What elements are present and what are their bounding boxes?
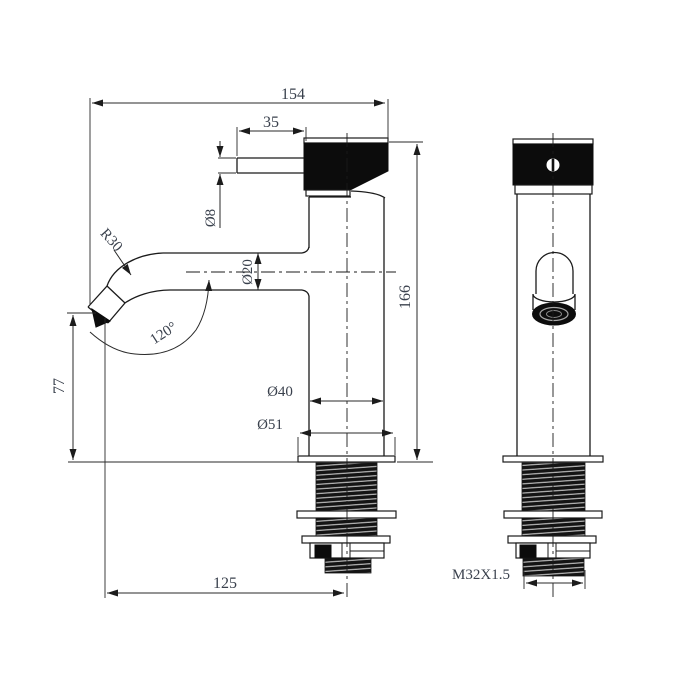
base-flange [298, 456, 395, 462]
body-shoulder-fillet [351, 191, 385, 198]
dim-m32-label: M32X1.5 [452, 567, 510, 583]
body-column [309, 197, 384, 456]
dim-spout-angle: 120° [90, 280, 209, 355]
dim-d51-extension-lines [298, 437, 395, 455]
dim-120-arc [90, 280, 209, 355]
spout-tip-band-line [107, 286, 125, 303]
dim-flange-diameter: Ø51 [257, 417, 395, 455]
dim-154-label: 154 [281, 86, 305, 103]
dim-d51-label: Ø51 [257, 417, 283, 433]
dim-35-label: 35 [263, 114, 279, 131]
spout-tube [163, 253, 302, 290]
front-locknut-flange [508, 536, 596, 543]
spout-bend-outer [88, 253, 163, 307]
mounting-washer [297, 511, 396, 518]
dim-tube-diameter: Ø20 [240, 253, 258, 290]
side-view-base-assembly [297, 456, 396, 573]
dim-d20-label: Ø20 [240, 259, 256, 285]
inlet-tailpiece [325, 558, 371, 573]
dim-d40-label: Ø40 [267, 384, 293, 400]
technical-drawing-page: 154 35 Ø8 R30 Ø20 120° [0, 0, 675, 675]
locknut-flange [302, 536, 390, 543]
front-view [503, 133, 603, 600]
handle-lever-rod [237, 158, 304, 173]
dim-154-extension-lines [90, 98, 388, 305]
handle-body [304, 143, 388, 190]
dim-d8-extension-lines [218, 158, 236, 173]
spout-body-fillets [302, 247, 309, 296]
handle-joint-band [306, 190, 350, 196]
bracket-clip [315, 545, 331, 558]
threaded-shank-mid [316, 518, 377, 536]
dim-r30-label: R30 [97, 226, 126, 255]
dim-125-label: 125 [213, 575, 237, 592]
dim-bend-radius: R30 [97, 226, 131, 275]
threaded-shank-upper [316, 463, 377, 511]
front-spout-dome [536, 253, 573, 294]
front-neck-band [515, 185, 592, 194]
dim-77-label: 77 [51, 378, 68, 394]
front-threaded-shank-upper [522, 463, 585, 511]
front-bracket-clip [520, 545, 536, 558]
dim-body-height: 166 [389, 142, 433, 462]
aerator-face [533, 303, 576, 325]
dim-166-label: 166 [397, 285, 414, 309]
dim-lever-length: 35 [237, 114, 306, 156]
dim-77-reference-lines [67, 313, 298, 462]
spout-outlet-opening [92, 309, 110, 327]
front-inlet-thread-m32 [523, 558, 584, 576]
dim-d8-label: Ø8 [203, 209, 219, 227]
front-threaded-shank-mid [522, 518, 585, 536]
dim-120-label: 120° [148, 319, 181, 348]
side-view [88, 133, 396, 600]
faucet-dimension-drawing: 154 35 Ø8 R30 Ø20 120° [0, 0, 675, 675]
handle-cap-top-band [304, 138, 388, 143]
dim-body-diameter: Ø40 [267, 384, 383, 401]
dim-rod-diameter: Ø8 [203, 141, 236, 228]
